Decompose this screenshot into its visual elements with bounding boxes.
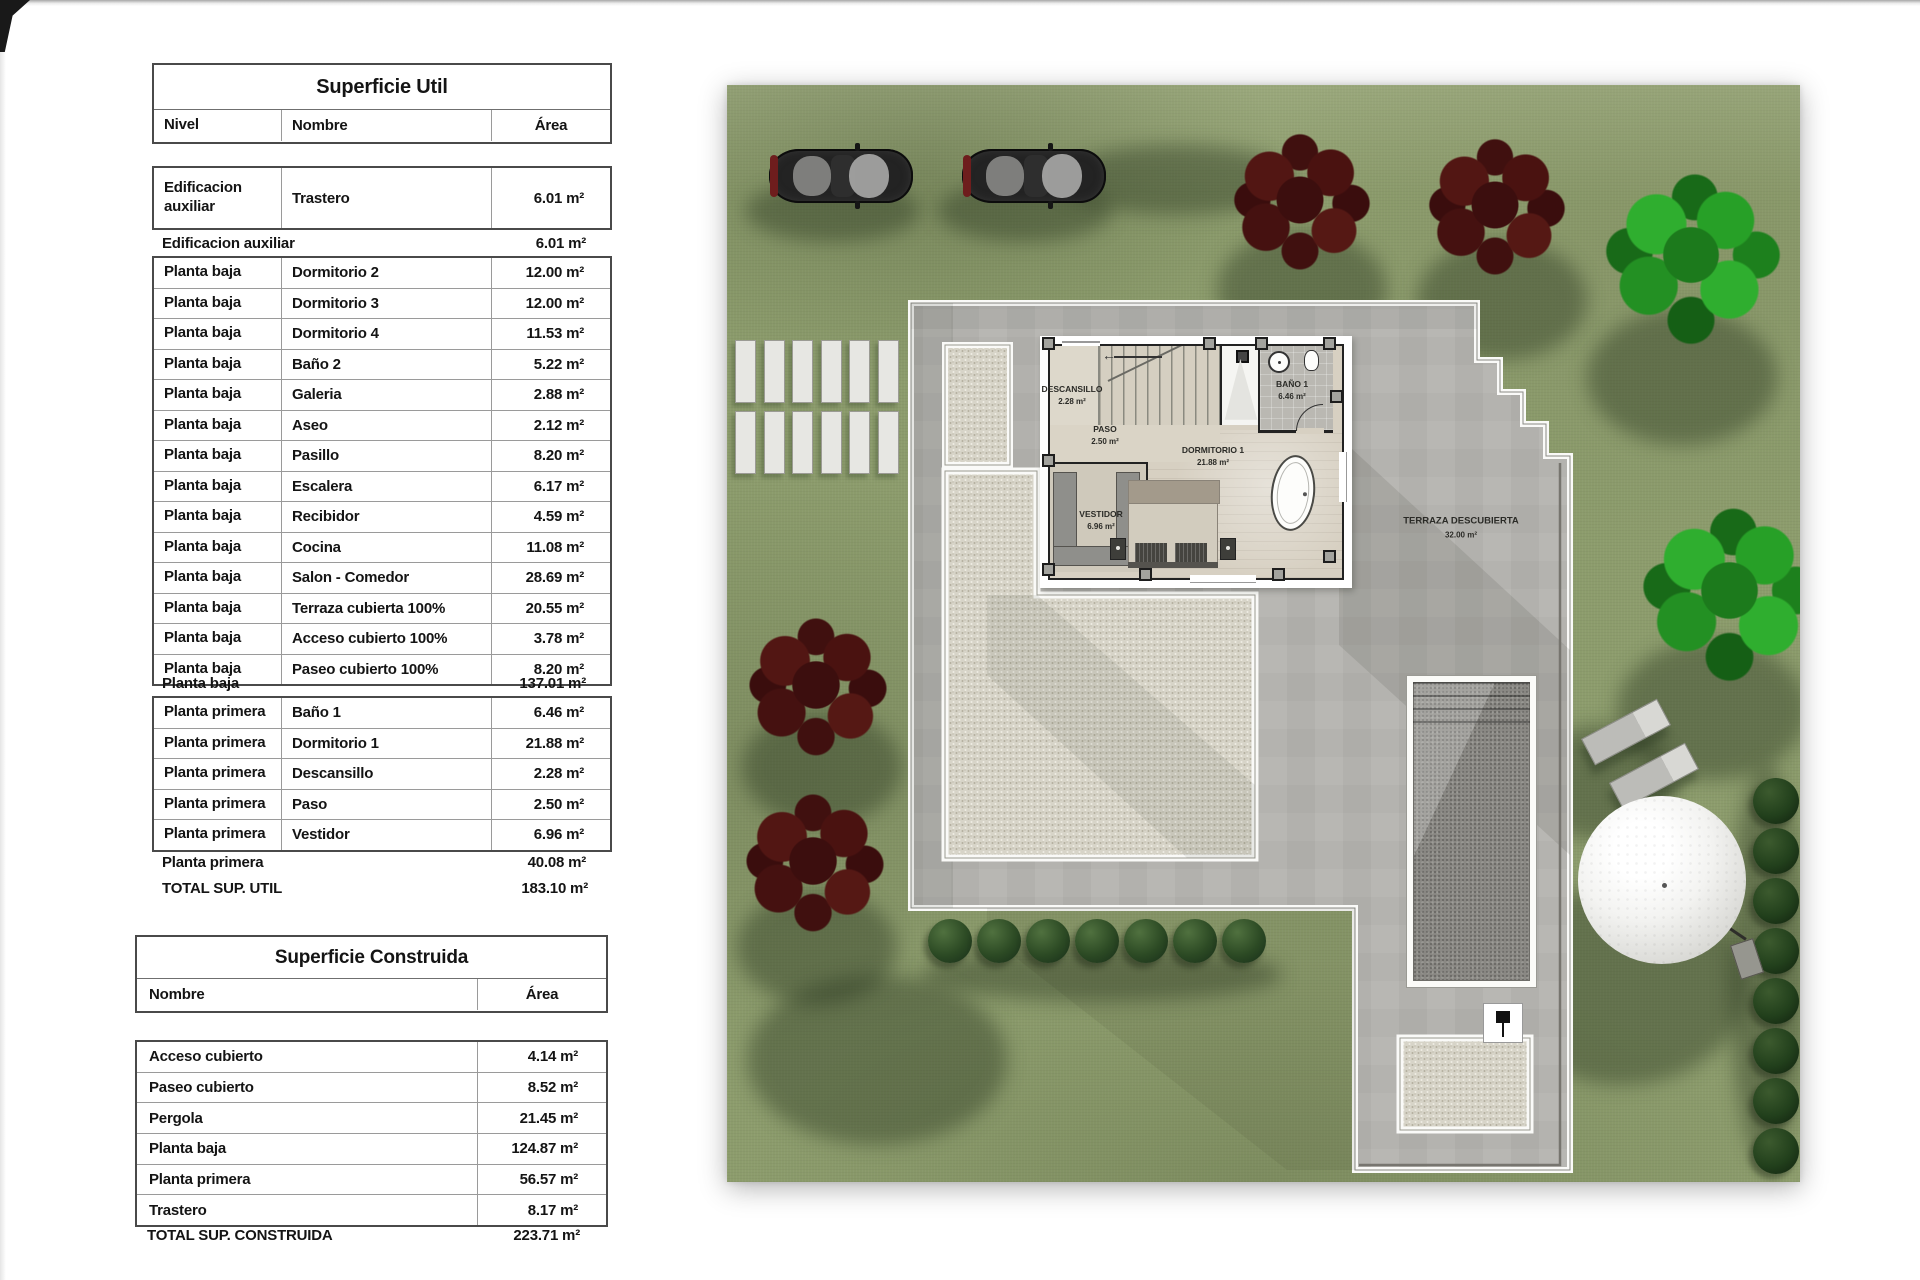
cell-nombre: Baño 1 [282,698,492,728]
room-area: 6.46 m² [1276,391,1308,403]
cell-nivel: Planta baja [154,258,282,288]
room-label-descansillo: DESCANSILLO 2.28 m² [1042,383,1103,409]
bed-pillow [1135,543,1167,563]
page-top-edge [0,0,1920,6]
cell-nombre: Planta baja [137,1134,478,1164]
room-area: 21.88 m² [1182,457,1244,469]
bush [1026,919,1070,963]
cell-area: 4.14 m² [478,1048,606,1065]
cell-nombre: Paseo cubierto [137,1073,478,1103]
table-title: Superficie Construida [137,937,606,979]
cell-area: 12.00 m² [492,295,610,312]
col-header-nombre: Nombre [137,979,478,1010]
cell-nivel: Planta baja [154,624,282,654]
red-tree [727,775,899,947]
cell-nivel: Planta primera [154,820,282,850]
cell-area: 2.50 m² [492,796,610,813]
toilet-icon [1304,350,1319,371]
cell-area: 2.88 m² [492,386,610,403]
bush [1222,919,1266,963]
shower-head-icon [1236,350,1249,363]
table-row: Planta bajaSalon - Comedor28.69 m² [154,562,610,593]
cell-nombre: Dormitorio 1 [282,729,492,759]
room-area: 2.50 m² [1091,436,1119,448]
cell-area: 4.59 m² [492,508,610,525]
room-name: DESCANSILLO [1042,383,1103,396]
cell-area: 5.22 m² [492,356,610,373]
room-label-dormitorio-1: DORMITORIO 1 21.88 m² [1182,444,1244,470]
room-area: 32.00 m² [1403,529,1519,541]
col-header-nombre: Nombre [282,110,492,141]
cell-nombre: Acceso cubierto 100% [282,624,492,654]
room-name: BAÑO 1 [1276,378,1308,391]
cell-nombre: Pasillo [282,441,492,471]
room-label-terraza: TERRAZA DESCUBIERTA 32.00 m² [1403,514,1519,541]
red-tree [730,599,902,771]
cell-nombre: Salon - Comedor [282,563,492,593]
stair-arrow-tail [1114,356,1162,358]
table-block-construida: Acceso cubierto4.14 m²Paseo cubierto8.52… [135,1040,608,1227]
subtotal-label: Planta baja [162,675,239,692]
cell-nombre: Trastero [282,168,492,228]
car-windshield [1042,154,1082,198]
cell-area: 8.20 m² [492,447,610,464]
cell-nivel: Planta baja [154,563,282,593]
pillar [1272,568,1285,581]
cell-nivel: Edificacion auxiliar [154,168,282,228]
paving-slab [878,340,899,403]
cell-nivel: Planta baja [154,472,282,502]
red-tree [1410,120,1580,290]
cell-nombre: Pergola [137,1103,478,1133]
pillar [1323,337,1336,350]
room-name: TERRAZA DESCUBIERTA [1403,514,1519,529]
table-row: Planta primeraBaño 16.46 m² [154,698,610,728]
pillar [1323,550,1336,563]
paving-slab [821,340,842,403]
bed-headboard [1128,480,1220,504]
table-row: Planta bajaBaño 25.22 m² [154,349,610,380]
page-corner-mark [0,0,30,52]
green-tree [1595,159,1787,351]
cell-nivel: Planta primera [154,729,282,759]
sphere-center-dot [1662,883,1667,888]
table-block-aux: Edificacion auxiliarTrastero6.01 m² [152,166,612,230]
cell-nombre: Acceso cubierto [137,1042,478,1072]
green-tree [1632,493,1800,688]
cell-area: 21.88 m² [492,735,610,752]
table-row: Planta bajaRecibidor4.59 m² [154,501,610,532]
car-mirror [1048,201,1053,209]
room-label-bano-1: BAÑO 1 6.46 m² [1276,378,1308,404]
closet [1053,472,1077,548]
sink-icon [1268,351,1290,373]
cell-area: 11.08 m² [492,539,610,556]
table-row: Planta bajaDormitorio 312.00 m² [154,288,610,319]
car-taillight [963,155,971,197]
pool-water [1413,682,1530,981]
room-name: DORMITORIO 1 [1182,444,1244,457]
subtotal-area: 40.08 m² [528,854,586,871]
car-taillight [770,155,778,197]
bathtub-faucet [1303,492,1307,496]
cell-nivel: Planta baja [154,411,282,441]
paving-slab [764,340,785,403]
pillar [1203,337,1216,350]
utility-wire [1502,1023,1504,1037]
table-block-planta-baja: Planta bajaDormitorio 212.00 m²Planta ba… [152,256,612,686]
cell-area: 56.57 m² [478,1171,606,1188]
table-row: Planta bajaPasillo8.20 m² [154,440,610,471]
cell-nombre: Planta primera [137,1165,478,1195]
swimming-pool [1406,675,1537,988]
table-row: Pergola21.45 m² [137,1102,606,1133]
utility-box [1483,1003,1523,1043]
table-row: Planta baja124.87 m² [137,1133,606,1164]
car-rear-window [986,156,1024,196]
room-name: PASO [1091,423,1119,436]
table-row: Paseo cubierto8.52 m² [137,1072,606,1103]
subtotal-label: Planta primera [162,854,263,871]
table-row: Planta bajaDormitorio 212.00 m² [154,258,610,288]
cell-nombre: Dormitorio 4 [282,319,492,349]
cell-nivel: Planta baja [154,289,282,319]
room-label-vestidor: VESTIDOR 6.96 m² [1079,508,1122,534]
cell-area: 124.87 m² [478,1140,606,1157]
cell-nivel: Planta baja [154,533,282,563]
page-left-edge [0,0,6,1280]
col-header-area: Área [478,986,606,1003]
table-row: Planta bajaAcceso cubierto 100%3.78 m² [154,623,610,654]
table-row: Planta bajaGaleria2.88 m² [154,379,610,410]
cell-area: 12.00 m² [492,264,610,281]
cell-nombre: Galeria [282,380,492,410]
cell-nivel: Planta baja [154,441,282,471]
table-superficie-util-header: Superficie Util Nivel Nombre Área [152,63,612,144]
cell-area: 8.52 m² [478,1079,606,1096]
cell-nombre: Terraza cubierta 100% [282,594,492,624]
bed [1128,480,1218,568]
pillar [1255,337,1268,350]
cell-nivel: Planta baja [154,502,282,532]
subtotal-area: 6.01 m² [536,235,586,252]
car-mirror [855,143,860,151]
col-header-nivel: Nivel [154,110,282,141]
bed-pillow [1175,543,1207,563]
bush [1075,919,1119,963]
cell-area: 2.12 m² [492,417,610,434]
cell-nombre: Paso [282,790,492,820]
paving-slab [735,411,756,474]
nightstand [1110,538,1126,560]
pillar [1330,390,1343,403]
red-tree [1215,115,1385,285]
cell-nivel: Planta primera [154,698,282,728]
total-label: TOTAL SUP. UTIL [162,880,282,897]
cell-area: 6.96 m² [492,826,610,843]
cell-area: 2.28 m² [492,765,610,782]
subtotal-label: Edificacion auxiliar [162,235,295,252]
cell-nombre: Vestidor [282,820,492,850]
pillar [1042,337,1055,350]
cell-area: 21.45 m² [478,1110,606,1127]
table-row: Planta primera56.57 m² [137,1164,606,1195]
cell-area: 28.69 m² [492,569,610,586]
cell-area: 3.78 m² [492,630,610,647]
table-row: Planta primeraPaso2.50 m² [154,789,610,820]
pillar [1139,568,1152,581]
bush [1753,878,1799,924]
total-label: TOTAL SUP. CONSTRUIDA [147,1227,333,1244]
total-area: 223.71 m² [513,1227,580,1244]
paving-slab [735,340,756,403]
paving-slab [878,411,899,474]
bush [928,919,972,963]
car-mirror [855,201,860,209]
car-mirror [1048,143,1053,151]
bush [1753,1128,1799,1174]
cell-nombre: Dormitorio 3 [282,289,492,319]
table-row: Planta primeraDescansillo2.28 m² [154,758,610,789]
paving-slab [764,411,785,474]
total-sup-construida: TOTAL SUP. CONSTRUIDA 223.71 m² [135,1222,608,1249]
table-row: Planta bajaCocina11.08 m² [154,532,610,563]
table-row: Planta bajaDormitorio 411.53 m² [154,318,610,349]
subtotal-area: 137.01 m² [519,675,586,692]
table-block-planta-primera: Planta primeraBaño 16.46 m²Planta primer… [152,696,612,852]
cell-nombre: Escalera [282,472,492,502]
cell-nivel: Planta baja [154,319,282,349]
bush [1753,828,1799,874]
bush [977,919,1021,963]
cell-area: 11.53 m² [492,325,610,342]
cell-nivel: Planta baja [154,594,282,624]
stair-direction-arrow: ← [1102,347,1116,363]
cell-nombre: Descansillo [282,759,492,789]
col-header-area: Área [492,117,610,134]
car [960,143,1108,209]
paving-slab [849,411,870,474]
cell-area: 6.46 m² [492,704,610,721]
shower [1220,346,1258,425]
subtotal-planta-primera: Planta primera 40.08 m² [152,849,612,875]
table-row: Planta bajaEscalera6.17 m² [154,471,610,502]
table-row: Planta bajaAseo2.12 m² [154,410,610,441]
paving-slab [792,340,813,403]
paving-slab [821,411,842,474]
pool-steps [1413,682,1530,732]
table-row: Edificacion auxiliarTrastero6.01 m² [154,168,610,228]
window-opening [1062,336,1100,346]
table-row: Planta primeraDormitorio 121.88 m² [154,728,610,759]
room-area: 6.96 m² [1079,521,1122,533]
subtotal-aux: Edificacion auxiliar 6.01 m² [152,230,612,256]
cell-nivel: Planta baja [154,380,282,410]
room-name: VESTIDOR [1079,508,1122,521]
bush [1753,978,1799,1024]
window-opening [1190,575,1256,588]
bush [1124,919,1168,963]
total-sup-util: TOTAL SUP. UTIL 183.10 m² [152,875,612,901]
bush [1753,778,1799,824]
paving-slab [792,411,813,474]
cell-area: 6.17 m² [492,478,610,495]
car-windshield [849,154,889,198]
staircase [1098,346,1220,425]
cell-nombre: Baño 2 [282,350,492,380]
cell-area: 20.55 m² [492,600,610,617]
cell-nivel: Planta baja [154,350,282,380]
pillar [1042,563,1055,576]
bush [1753,1028,1799,1074]
paving-slab [849,340,870,403]
utility-plug [1496,1011,1510,1023]
table-row: Trastero8.17 m² [137,1194,606,1225]
table-title: Superficie Util [154,65,610,110]
car [767,143,915,209]
cell-nombre: Dormitorio 2 [282,258,492,288]
bush [1173,919,1217,963]
pillar [1042,454,1055,467]
bush [1753,1078,1799,1124]
total-area: 183.10 m² [521,880,588,897]
cell-nombre: Trastero [137,1195,478,1225]
nightstand [1220,538,1236,560]
cell-nivel: Planta primera [154,759,282,789]
room-area: 2.28 m² [1042,396,1103,408]
closet [1053,546,1140,566]
cell-area: 6.01 m² [492,190,610,207]
table-row: Planta bajaTerraza cubierta 100%20.55 m² [154,593,610,624]
car-rear-window [793,156,831,196]
subtotal-planta-baja: Planta baja 137.01 m² [152,670,612,696]
room-label-paso: PASO 2.50 m² [1091,423,1119,449]
cell-nivel: Planta primera [154,790,282,820]
cell-nombre: Recibidor [282,502,492,532]
cell-area: 8.17 m² [478,1202,606,1219]
sphere-sculpture [1578,796,1746,964]
table-row: Acceso cubierto4.14 m² [137,1042,606,1072]
table-row: Planta primeraVestidor6.96 m² [154,819,610,850]
shower-spray [1224,359,1258,421]
table-superficie-construida-header: Superficie Construida Nombre Área [135,935,608,1013]
cell-nombre: Cocina [282,533,492,563]
cell-nombre: Aseo [282,411,492,441]
terrace-door-opening [1339,452,1352,502]
site-plan: ← [727,85,1800,1182]
